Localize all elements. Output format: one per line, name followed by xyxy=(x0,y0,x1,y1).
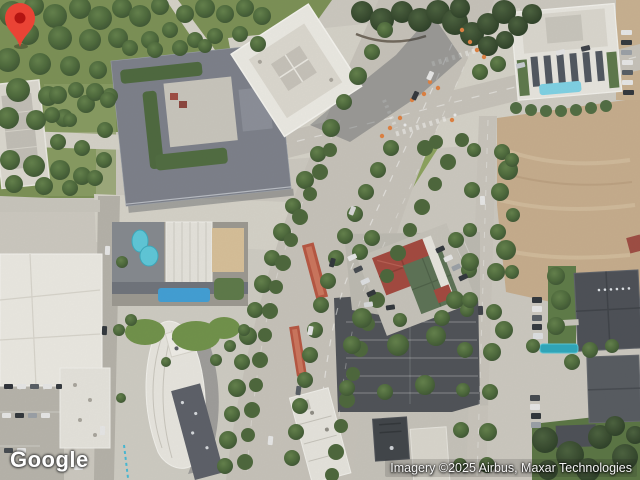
map-pin-icon[interactable] xyxy=(0,0,40,50)
pin-shadow xyxy=(14,44,28,49)
google-logo[interactable]: Google xyxy=(10,447,89,473)
map-attribution: Imagery ©2025 Airbus, Maxar Technologies xyxy=(385,459,637,477)
satellite-imagery xyxy=(0,0,640,480)
pin-body xyxy=(5,3,35,47)
pin-dot xyxy=(15,13,26,24)
grain-overlay xyxy=(0,0,640,480)
map-canvas[interactable]: Google Imagery ©2025 Airbus, Maxar Techn… xyxy=(0,0,640,480)
